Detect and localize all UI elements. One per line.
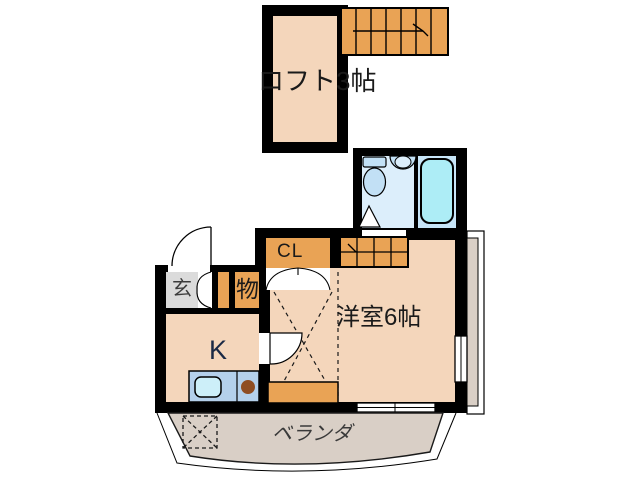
loft-label: ロフト3帖	[258, 68, 376, 94]
wall-cl-right	[330, 228, 340, 268]
shoe-closet-front	[198, 272, 212, 308]
bathroom	[353, 148, 467, 240]
bathtub	[421, 159, 453, 223]
balcony-strip	[467, 238, 478, 406]
balcony-side	[467, 231, 484, 414]
entrance-opening	[168, 265, 210, 273]
room-label: 洋室6帖	[336, 306, 421, 330]
entrance-door-arc	[172, 227, 211, 266]
storage-strip	[218, 272, 229, 308]
window-bottom	[357, 403, 435, 412]
staircase-lower	[340, 237, 408, 267]
step-platform	[268, 382, 338, 403]
entrance-door	[172, 227, 211, 266]
wall-cl-left	[255, 228, 266, 268]
wash-basin-bowl	[395, 156, 411, 168]
toilet-bowl	[364, 168, 386, 196]
staircase-upper	[341, 8, 448, 55]
wall-genkan-bottom	[166, 308, 259, 314]
wall-genkan-divider2	[229, 272, 235, 308]
storage-label: 物	[236, 278, 259, 301]
kitchen-door-opening	[259, 333, 270, 364]
veranda-label: ベランダ	[272, 424, 352, 444]
kitchen-label: K	[209, 337, 227, 364]
window-right	[455, 336, 467, 382]
entrance-label: 玄	[172, 279, 192, 299]
bath-divider-wall	[414, 156, 418, 228]
kitchen	[189, 371, 259, 402]
burner	[241, 380, 255, 394]
wall-left	[155, 265, 166, 413]
floor-plan: ロフト3帖 CL 物 玄 K 洋室6帖 ベランダ	[0, 0, 638, 480]
kitchen-sink	[195, 377, 221, 397]
toilet-tank	[363, 157, 386, 167]
wall-genkan-divider1	[212, 272, 218, 308]
closet-label: CL	[277, 242, 303, 261]
